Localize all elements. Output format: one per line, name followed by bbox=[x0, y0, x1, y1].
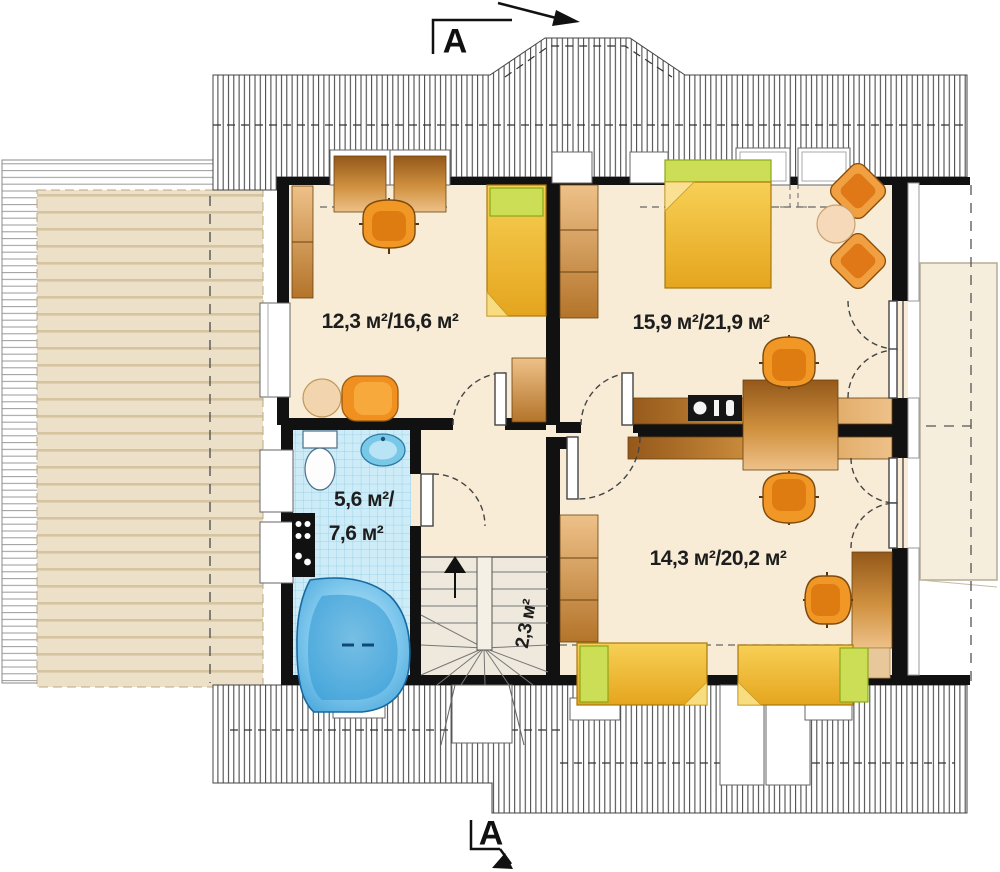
office-chair-icon bbox=[803, 572, 853, 628]
floor-plan-drawing bbox=[0, 0, 1000, 872]
single-bed-icon bbox=[738, 645, 868, 705]
sink-icon bbox=[361, 434, 405, 466]
section-letter-bottom: A bbox=[479, 815, 504, 854]
floor-plan: A A 12,3 м²/16,6 м² 15,9 м²/21,9 м² 5,6 … bbox=[0, 0, 1000, 872]
room-label-top-left: 12,3 м²/16,6 м² bbox=[322, 310, 459, 334]
room-label-bottom-right: 14,3 м²/20,2 м² bbox=[650, 547, 787, 571]
single-bed-icon bbox=[487, 185, 546, 316]
wardrobe-icon bbox=[560, 515, 598, 642]
room-label-top-right: 15,9 м²/21,9 м² bbox=[633, 311, 770, 335]
bathtub-icon bbox=[297, 578, 410, 712]
round-table-icon bbox=[303, 379, 341, 417]
computer-icon bbox=[688, 395, 742, 421]
double-bed-icon bbox=[665, 160, 771, 288]
office-chair-icon bbox=[759, 335, 819, 389]
desk-icon bbox=[852, 552, 892, 648]
terrace-right bbox=[908, 185, 997, 683]
desk-icon bbox=[743, 380, 838, 470]
bathroom-label-line1: 5,6 м²/ bbox=[334, 488, 394, 512]
toilet-icon bbox=[303, 431, 337, 490]
round-table-icon bbox=[817, 205, 855, 243]
office-chair-icon bbox=[759, 471, 819, 525]
stair-stringer bbox=[477, 557, 492, 650]
bathroom-label-line2: 7,6 м² bbox=[329, 522, 384, 546]
boiler-icon bbox=[292, 513, 315, 577]
cabinet-icon bbox=[512, 358, 546, 422]
single-bed-icon bbox=[577, 643, 707, 705]
section-letter-top: A bbox=[443, 23, 468, 62]
garage-roof bbox=[2, 160, 263, 687]
wardrobe-icon bbox=[560, 185, 598, 318]
armchair-icon bbox=[342, 376, 398, 421]
